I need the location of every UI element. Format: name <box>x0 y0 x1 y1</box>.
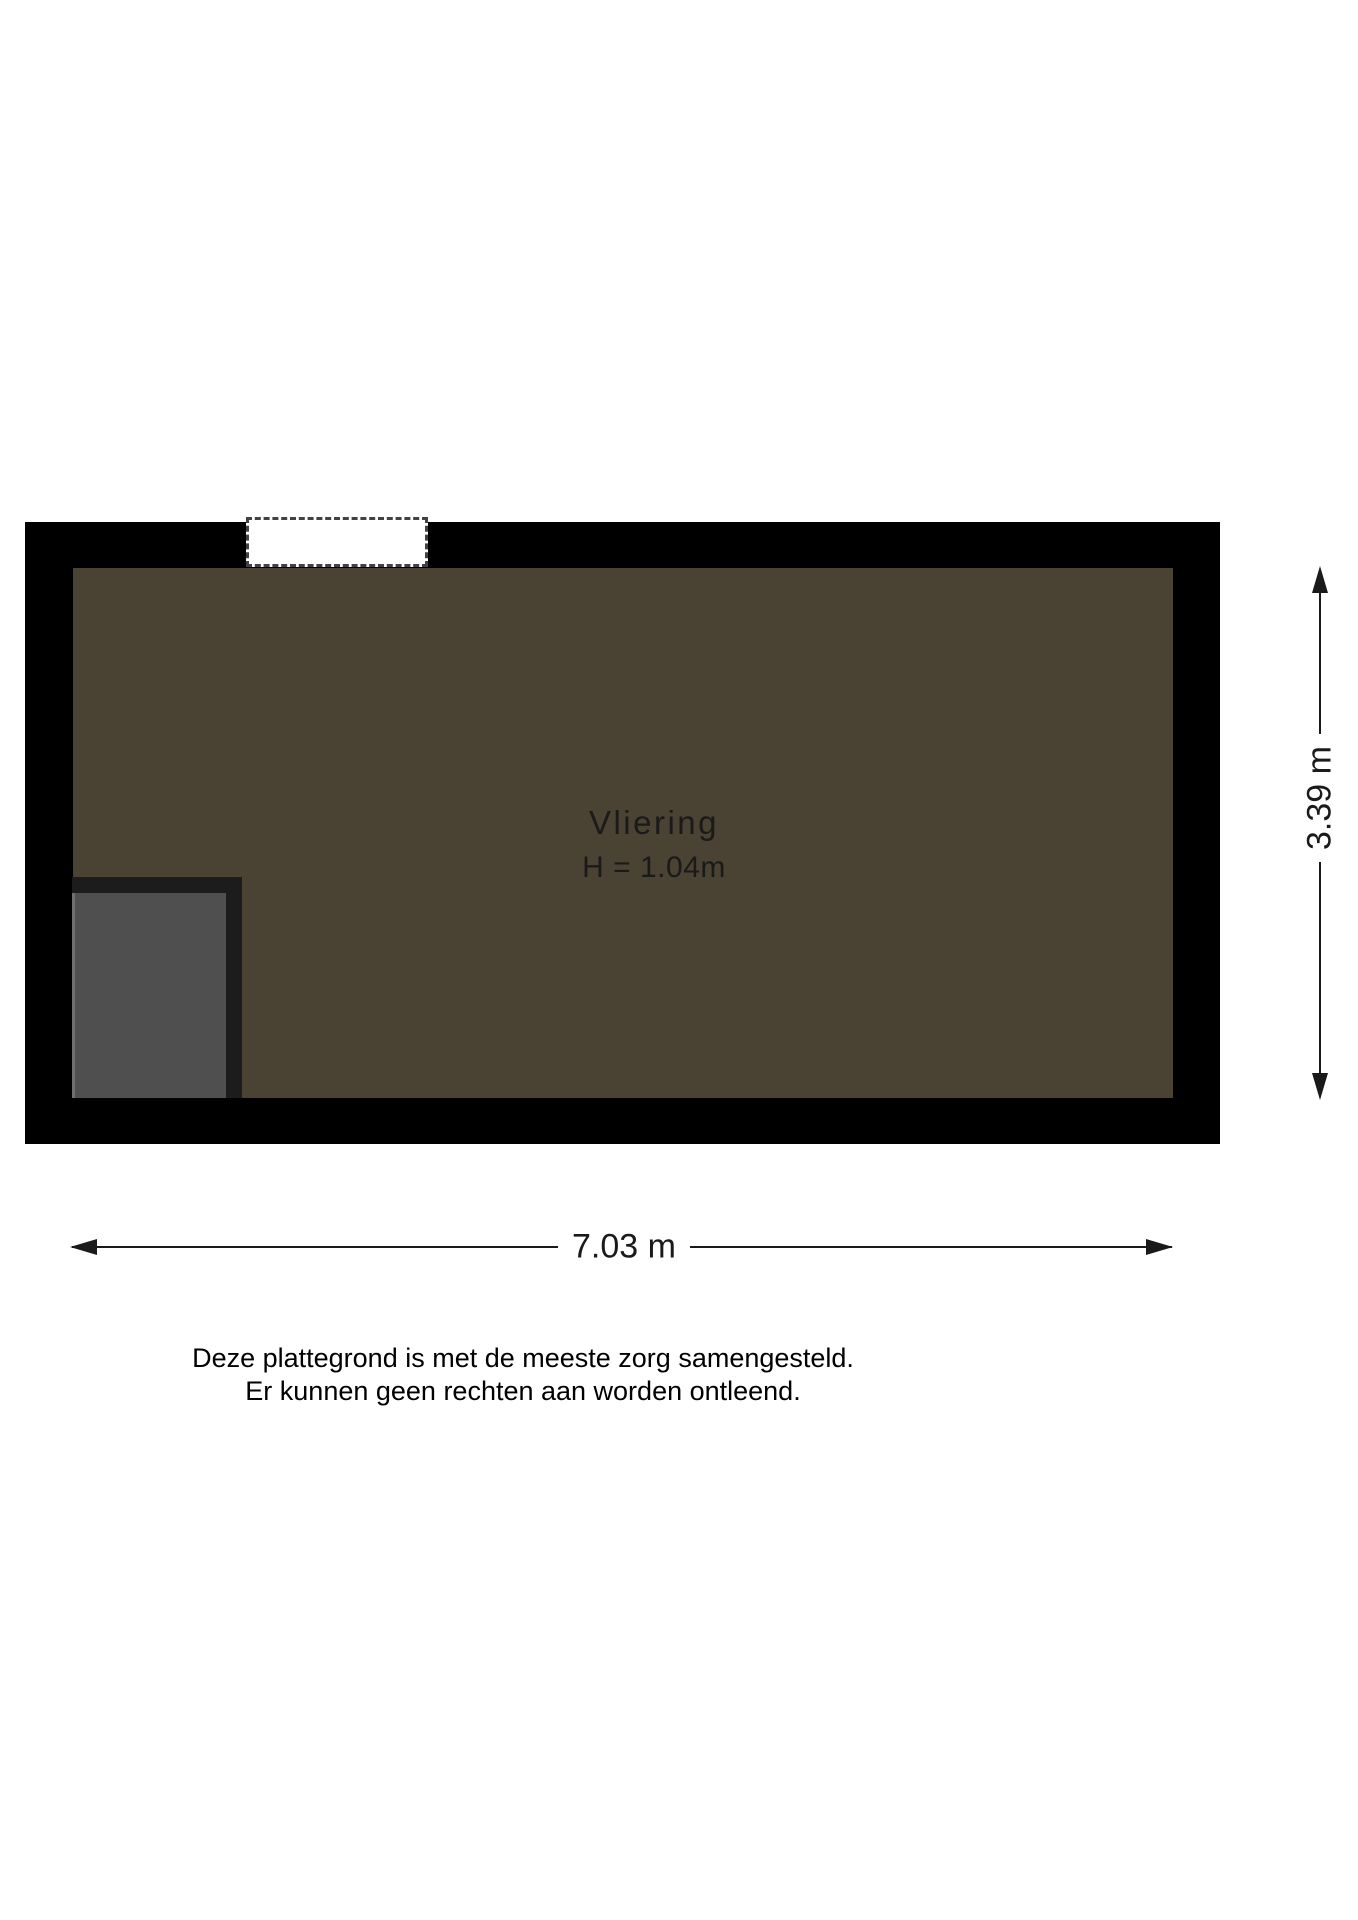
disclaimer: Deze plattegrond is met de meeste zorg s… <box>192 1342 854 1408</box>
arrow-left-icon <box>70 1239 97 1255</box>
arrow-up-icon <box>1312 566 1328 593</box>
height-dimension-label: 3.39 m <box>1297 734 1344 862</box>
room-height-label: H = 1.04m <box>582 851 726 885</box>
arrow-right-icon <box>1146 1239 1173 1255</box>
window-opening <box>246 517 428 567</box>
stair-opening-fill <box>72 893 226 1098</box>
disclaimer-line-1: Deze plattegrond is met de meeste zorg s… <box>192 1342 854 1375</box>
width-dimension-label: 7.03 m <box>558 1226 690 1269</box>
room-name-label: Vliering <box>582 804 726 842</box>
room-label-block: Vliering H = 1.04m <box>582 804 726 885</box>
floorplan-page: Vliering H = 1.04m 3.39 m 7.03 m Deze pl… <box>0 0 1358 1920</box>
stair-opening <box>72 877 242 1098</box>
arrow-down-icon <box>1312 1073 1328 1100</box>
disclaimer-line-2: Er kunnen geen rechten aan worden ontlee… <box>192 1375 854 1408</box>
